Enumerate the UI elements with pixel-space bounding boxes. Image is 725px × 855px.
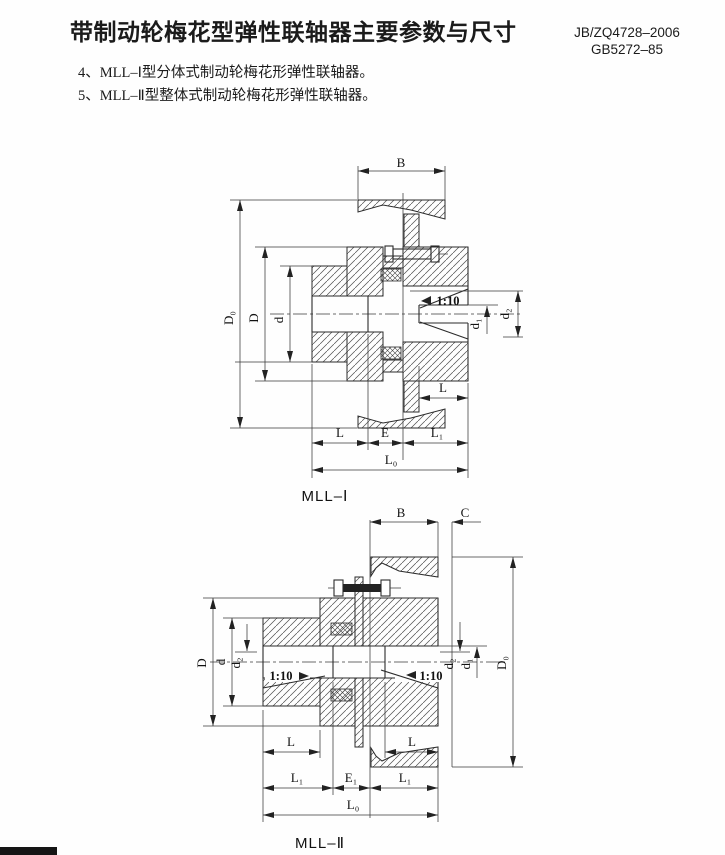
standard-numbers: JB/ZQ4728–2006 GB5272–85 bbox=[556, 24, 698, 58]
dim-label-d-cap: D bbox=[194, 658, 209, 667]
note-item-5: 5、MLL–Ⅱ型整体式制动轮梅花形弹性联轴器。 bbox=[78, 85, 377, 108]
dimension-lines: B C D d d₂ 1:10 1:10 bbox=[194, 505, 523, 822]
figure1-drawing: B D₀ D d 1:10 d₁ bbox=[215, 148, 530, 508]
dim-label-c: C bbox=[461, 505, 470, 520]
standard-gb: GB5272–85 bbox=[556, 41, 698, 58]
dim-label-l-right: L bbox=[408, 734, 416, 749]
dim-label-d2-right: d₂ bbox=[441, 658, 456, 669]
dim-label-l0: L₀ bbox=[385, 452, 397, 467]
scan-edge-artifact bbox=[0, 847, 57, 855]
taper-label: 1:10 bbox=[437, 294, 460, 308]
notes-list: 4、MLL–Ⅰ型分体式制动轮梅花形弹性联轴器。 5、MLL–Ⅱ型整体式制动轮梅花… bbox=[78, 62, 377, 107]
dim-label-d1: d₁ bbox=[458, 658, 473, 669]
dim-label-d2: d₂ bbox=[497, 308, 512, 319]
centerlines bbox=[270, 193, 523, 460]
dim-label-l-left: L bbox=[287, 734, 295, 749]
page-title: 带制动轮梅花型弹性联轴器主要参数与尺寸 bbox=[70, 13, 517, 47]
note-item-4: 4、MLL–Ⅰ型分体式制动轮梅花形弹性联轴器。 bbox=[78, 62, 377, 85]
dim-label-b: B bbox=[397, 505, 406, 520]
standard-jb: JB/ZQ4728–2006 bbox=[556, 24, 698, 41]
dim-label-d-small: d bbox=[271, 316, 286, 323]
dim-label-d1: d₁ bbox=[467, 318, 482, 329]
dim-label-d0: D₀ bbox=[494, 656, 509, 670]
taper-left-label: 1:10 bbox=[270, 669, 293, 683]
dim-label-d-small: d bbox=[213, 658, 228, 665]
dim-label-l1-left: L₁ bbox=[291, 770, 303, 785]
dim-label-d-cap: D bbox=[246, 313, 261, 322]
dim-label-l1: L₁ bbox=[431, 425, 443, 440]
dim-label-l0: L₀ bbox=[347, 797, 359, 812]
document-page: 带制动轮梅花型弹性联轴器主要参数与尺寸 JB/ZQ4728–2006 GB527… bbox=[0, 0, 725, 855]
dim-label-e: E bbox=[381, 425, 389, 440]
dim-label-l: L bbox=[336, 425, 344, 440]
dim-label-l-hole: L bbox=[439, 380, 447, 395]
taper-arrow-icon bbox=[421, 296, 431, 305]
dim-label-l1-right: L₁ bbox=[399, 770, 411, 785]
dim-label-d0: D₀ bbox=[221, 311, 236, 325]
figure2-drawing: B C D d d₂ 1:10 1:10 bbox=[185, 500, 540, 855]
flange-bolt bbox=[328, 580, 401, 596]
dim-label-e1: E₁ bbox=[345, 770, 357, 785]
dim-label-d2-left: d₂ bbox=[228, 657, 243, 668]
dim-label-b: B bbox=[397, 155, 406, 170]
figure2-caption: MLL–Ⅱ bbox=[295, 835, 345, 852]
taper-right-label: 1:10 bbox=[420, 669, 443, 683]
